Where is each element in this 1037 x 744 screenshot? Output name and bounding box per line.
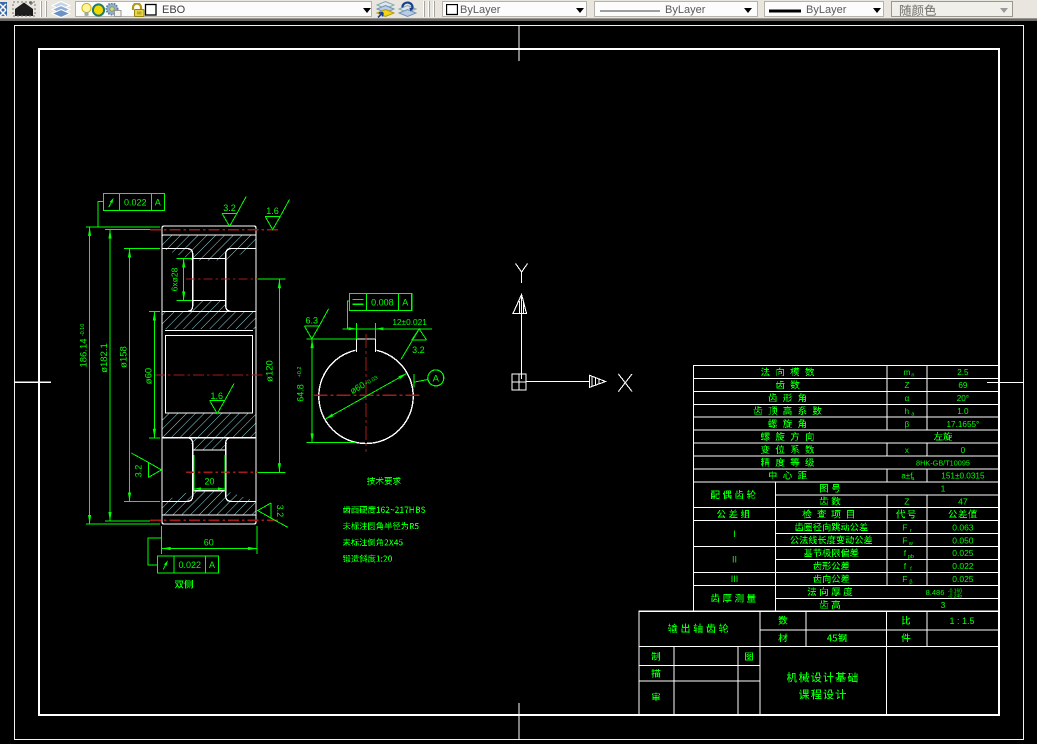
svg-text:20: 20 [204, 477, 214, 487]
svg-text:III: III [731, 574, 739, 584]
svg-text:-0.245: -0.245 [948, 593, 962, 599]
svg-text:8.486: 8.486 [926, 588, 945, 597]
svg-text:2.5: 2.5 [957, 368, 969, 377]
svg-text:69: 69 [958, 381, 968, 390]
svg-text:A: A [433, 373, 440, 384]
svg-text:0.025: 0.025 [952, 574, 974, 584]
svg-text:-0.10: -0.10 [80, 324, 86, 337]
svg-text:ø60: ø60 [144, 368, 155, 384]
svg-text:17.1655°: 17.1655° [946, 420, 979, 429]
svg-text:12±0.021: 12±0.021 [392, 317, 427, 327]
svg-text:β: β [905, 420, 910, 429]
svg-text:Z: Z [904, 497, 909, 507]
svg-text:3.2: 3.2 [223, 203, 236, 213]
svg-text:64.8: 64.8 [296, 384, 306, 402]
svg-text:h: h [905, 407, 909, 416]
svg-text:3.2: 3.2 [275, 505, 285, 518]
svg-text:151±0.0315: 151±0.0315 [941, 472, 985, 481]
svg-text:F: F [902, 535, 907, 545]
svg-text:1: 1 [941, 484, 946, 494]
svg-text:0.008: 0.008 [371, 297, 394, 307]
svg-text:0.063: 0.063 [952, 522, 974, 532]
svg-text:1.6: 1.6 [266, 206, 279, 216]
svg-text:0: 0 [961, 446, 966, 455]
svg-text:α: α [905, 394, 910, 403]
svg-text:Z: Z [904, 381, 909, 390]
svg-text:w: w [908, 541, 913, 547]
svg-text:n: n [911, 373, 914, 379]
svg-text:1.0: 1.0 [957, 407, 969, 416]
svg-text:A: A [155, 197, 161, 207]
svg-text:0.022: 0.022 [179, 560, 202, 570]
svg-text:ø120: ø120 [265, 360, 276, 382]
svg-text:3.2: 3.2 [412, 345, 425, 355]
svg-text:pb: pb [908, 554, 914, 560]
svg-text:A: A [209, 560, 215, 570]
svg-text:47: 47 [958, 497, 968, 507]
svg-text:ø158: ø158 [119, 346, 130, 368]
svg-text:I: I [733, 529, 736, 539]
svg-text:3.2: 3.2 [134, 465, 144, 478]
svg-text:β: β [909, 580, 912, 586]
svg-text:8HK-GB/T10095: 8HK-GB/T10095 [916, 459, 970, 468]
svg-text:A: A [402, 297, 408, 307]
svg-text:6.3: 6.3 [305, 316, 318, 326]
svg-text:0.022: 0.022 [952, 561, 974, 571]
svg-text:60: 60 [204, 538, 214, 548]
svg-text:r: r [910, 528, 912, 534]
svg-text:F: F [902, 522, 907, 532]
svg-text:II: II [732, 555, 737, 565]
svg-text:6xø28: 6xø28 [170, 267, 180, 291]
svg-text:+0.2: +0.2 [297, 367, 303, 378]
svg-text:0.050: 0.050 [952, 535, 974, 545]
svg-text:ø182.1: ø182.1 [99, 343, 110, 373]
svg-text:3: 3 [941, 600, 946, 610]
svg-text:20°: 20° [957, 394, 969, 403]
svg-text:m: m [904, 368, 911, 377]
svg-text:0.025: 0.025 [952, 548, 974, 558]
svg-text:186.14: 186.14 [79, 338, 90, 367]
svg-text:1 : 1.5: 1 : 1.5 [949, 616, 974, 626]
svg-text:F: F [902, 574, 907, 584]
svg-text:1.6: 1.6 [210, 391, 223, 401]
svg-text:0.022: 0.022 [124, 197, 147, 207]
svg-text:x: x [905, 446, 909, 455]
